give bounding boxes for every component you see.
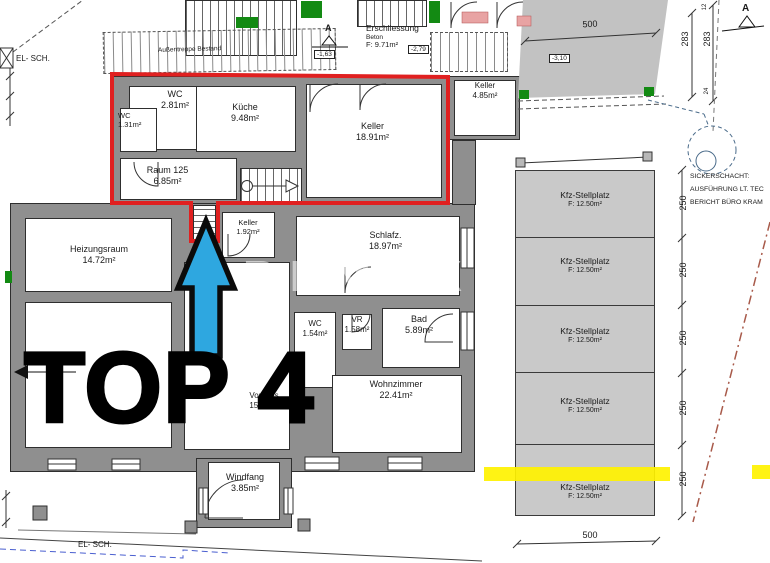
dim-250-1: 250	[678, 188, 688, 218]
el-sch-label-top: EL- SCH.	[16, 54, 50, 63]
dim-283-a: 283	[680, 24, 690, 54]
dim-500-bottom: 500	[570, 530, 610, 540]
el-sch-label-bottom: EL- SCH.	[78, 540, 112, 549]
el-sch-symbol-top	[0, 0, 83, 126]
dim-12: 12	[702, 0, 708, 17]
room-label-keller-3: Keller1.92m²	[222, 218, 274, 236]
level-badge-building: -3,10	[549, 54, 570, 63]
room-label-raum-125: Raum 1256.85m²	[120, 165, 215, 187]
dim-24: 24	[704, 81, 710, 101]
porch-pillars	[33, 506, 310, 533]
room-label-wc-1: WC2.81m²	[145, 89, 205, 111]
sickerschacht-symbol	[688, 126, 736, 174]
section-marker-a1: A	[325, 23, 332, 33]
dim-250-3: 250	[678, 323, 688, 353]
room-label-keller-1: Keller18.91m²	[330, 121, 415, 143]
room-label-keller-2: Keller4.85m²	[450, 81, 520, 100]
interior-stair-arrow	[242, 180, 299, 192]
room-label-heizungsraum: Heizungsraum14.72m²	[40, 244, 158, 266]
unit-title-top4: TOP 4	[24, 338, 314, 438]
room-label-kueche: Küche9.48m²	[210, 102, 280, 124]
dim-250-2: 250	[678, 255, 688, 285]
floor-plan-canvas: Kfz-Stellplatz F: 12.50m² Kfz-Stellplatz…	[0, 0, 770, 563]
room-label-windfang: Windfang3.85m²	[208, 472, 282, 494]
room-label-schlafzimmer: Schlafz.18.97m²	[338, 230, 433, 252]
yellow-highlight-main	[484, 467, 670, 481]
room-label-wohnzimmer: Wohnzimmer22.41m²	[347, 379, 445, 401]
dim-500-top: 500	[570, 18, 610, 30]
parking-connector	[516, 152, 652, 167]
dim-250-4: 250	[678, 393, 688, 423]
section-marker-a2: A	[742, 3, 749, 14]
yellow-highlight-edge	[752, 465, 770, 479]
room-label-vr: VR1.58m²	[338, 315, 376, 334]
sickerschacht-note: SICKERSCHACHT: AUSFÜHRUNG LT. TEC BERICH…	[690, 171, 764, 210]
room-label-wc-2: WC1.31m²	[118, 111, 162, 129]
dim-283-b: 283	[702, 24, 712, 54]
room-label-bad: Bad5.89m²	[388, 314, 450, 336]
watermark: REMAX	[243, 252, 477, 302]
dim-250-5: 250	[678, 464, 688, 494]
level-badge-b: -2,79	[408, 45, 429, 54]
level-badge-a: -1,63	[314, 50, 335, 59]
